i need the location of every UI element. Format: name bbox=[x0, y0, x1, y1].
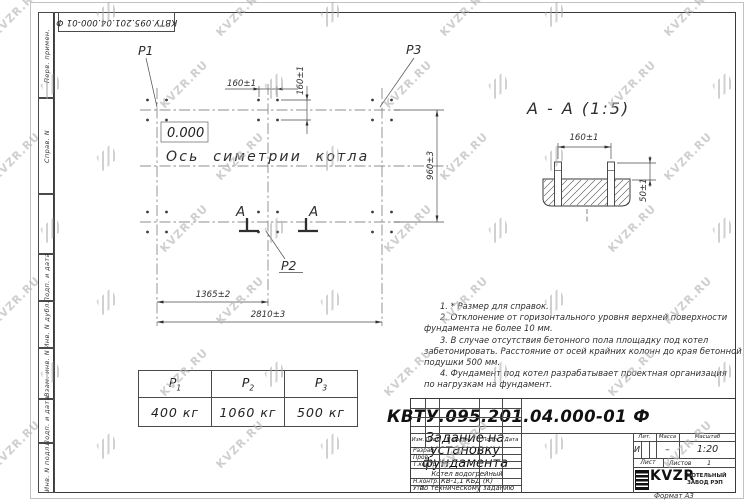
row-razrab: Разраб. bbox=[413, 448, 436, 454]
anchor-bolt-dot bbox=[146, 231, 149, 234]
anchor-bolt-dot bbox=[371, 99, 374, 102]
row-tkontr: Т.контр. bbox=[413, 462, 438, 468]
note-line: фундамента не более 10 мм. bbox=[424, 323, 736, 334]
row-prov: Пров. bbox=[413, 455, 430, 461]
row-nkontr: Н.контр. bbox=[413, 479, 439, 485]
note-line: 1. * Размер для справок. bbox=[424, 301, 736, 312]
anchor-bolt-dot bbox=[276, 99, 279, 102]
col-podp: Подп. bbox=[479, 433, 502, 447]
anchor-bolt-dot bbox=[165, 119, 168, 122]
load-label-p1: P1 bbox=[138, 43, 154, 58]
note-line: по нагрузкам на фундамент. bbox=[424, 379, 736, 390]
logo-caption-line: ЗАВОД РЭП bbox=[687, 480, 723, 486]
listov-value: 1 bbox=[707, 459, 711, 467]
note-line: подушки 500 мм. bbox=[424, 357, 736, 368]
anchor-bolt-dot bbox=[390, 99, 393, 102]
anchor-bolt-right bbox=[608, 162, 615, 206]
dim-160-horizontal: 160±1 bbox=[225, 79, 298, 97]
section-cut-marks: A A bbox=[235, 204, 318, 231]
anchor-bolt-dot bbox=[371, 231, 374, 234]
title-block-doc-number: КВТУ.095.201.04.000-01 Ф bbox=[411, 399, 626, 433]
kvzr-logo-icon bbox=[635, 470, 649, 490]
section-view: A - A (1:5) 160±1 50±1 bbox=[526, 99, 656, 224]
drawing-sheet: Перв. примен. Справ. N Подп. и дата Инв.… bbox=[0, 0, 750, 500]
logo-caption-line: КОТЕЛЬНЫЙ bbox=[687, 473, 727, 479]
load-table-header: P1 bbox=[139, 371, 212, 398]
col-list: Лист bbox=[425, 433, 439, 447]
anchor-bolt-dot bbox=[257, 119, 260, 122]
elevation-value: 0.000 bbox=[167, 126, 204, 141]
dim-2810: 2810±3 bbox=[157, 310, 382, 324]
col-n-dokum: N докум. bbox=[439, 433, 479, 447]
title-block: Изм. Лист N докум. Подп. Дата Разраб. Пр… bbox=[410, 398, 736, 493]
technical-notes: 1. * Размер для справок. 2. Отклонение о… bbox=[424, 301, 736, 391]
elevation-mark: 0.000 bbox=[161, 122, 208, 142]
symmetry-axis-label: Ось симетрии котла bbox=[166, 149, 369, 165]
section-letter-right: A bbox=[308, 204, 318, 220]
note-line: 2. Отклонение от горизонтального уровня … bbox=[424, 312, 736, 323]
row-utv: Утв. bbox=[413, 486, 425, 492]
massa-label: Масса bbox=[656, 433, 679, 441]
dim-160-vertical: 160±1 bbox=[281, 66, 311, 134]
dim-text: 960±3 bbox=[426, 151, 436, 180]
anchor-bolt-dot bbox=[276, 119, 279, 122]
col-data: Дата bbox=[502, 433, 521, 447]
load-table-value: 500 кг bbox=[285, 398, 358, 427]
masshtab-value: 1:20 bbox=[679, 441, 736, 458]
load-table-header: P2 bbox=[212, 371, 285, 398]
anchor-bolt-dot bbox=[276, 231, 279, 234]
dim-text: 2810±3 bbox=[251, 310, 286, 320]
lit-label: Лит. bbox=[633, 433, 656, 441]
product-line: по техническому заданию bbox=[411, 485, 523, 492]
load-table-value: 1060 кг bbox=[212, 398, 285, 427]
section-letter-left: A bbox=[235, 204, 245, 220]
anchor-bolt-left bbox=[555, 162, 562, 206]
anchor-bolt-dot bbox=[165, 211, 168, 214]
load-table-value: 400 кг bbox=[139, 398, 212, 427]
dim-1365: 1365±2 bbox=[157, 290, 268, 304]
anchor-bolt-dot bbox=[257, 99, 260, 102]
load-table-header-row: P1 P2 P3 bbox=[139, 371, 358, 398]
load-table-value-row: 400 кг 1060 кг 500 кг bbox=[139, 398, 358, 427]
section-view-title: A - A (1:5) bbox=[526, 99, 630, 118]
load-table-header: P3 bbox=[285, 371, 358, 398]
anchor-bolt-dot bbox=[371, 119, 374, 122]
anchor-bolt-dot bbox=[146, 211, 149, 214]
anchor-bolt-dot bbox=[165, 99, 168, 102]
massa-value: – bbox=[656, 441, 679, 458]
list-label: Лист bbox=[635, 458, 661, 467]
anchor-bolt-dot bbox=[390, 231, 393, 234]
masshtab-label: Масштаб bbox=[679, 433, 736, 441]
anchor-bolt-dot bbox=[276, 211, 279, 214]
lit-value: И bbox=[633, 441, 641, 458]
load-label-p2: P2 bbox=[281, 258, 297, 273]
anchor-bolt-dot bbox=[371, 211, 374, 214]
anchor-bolt-dot bbox=[257, 211, 260, 214]
listov-label: Листов bbox=[669, 460, 691, 467]
load-table: P1 P2 P3 400 кг 1060 кг 500 кг bbox=[138, 370, 358, 427]
dim-text: 160±1 bbox=[296, 66, 306, 95]
anchor-bolt-dot bbox=[146, 99, 149, 102]
format-label: Формат А3 bbox=[654, 492, 694, 500]
anchor-bolt-dot bbox=[146, 119, 149, 122]
note-line: забетонировать. Расстояние от осей крайн… bbox=[424, 346, 736, 357]
note-line: 3. В случае отсутствия бетонного пола пл… bbox=[424, 335, 736, 346]
dim-text: 50±1 bbox=[639, 178, 649, 202]
col-izm: Изм. bbox=[411, 433, 425, 447]
anchor-bolt-dot bbox=[390, 211, 393, 214]
note-line: 4. Фундамент под котел разрабатывает про… bbox=[424, 368, 736, 379]
dim-text: 1365±2 bbox=[196, 290, 231, 300]
dim-text: 160±1 bbox=[227, 79, 256, 89]
anchor-bolt-dot bbox=[390, 119, 393, 122]
load-label-p3: P3 bbox=[406, 42, 422, 57]
dim-text: 160±1 bbox=[569, 133, 598, 143]
anchor-bolt-dot bbox=[165, 231, 168, 234]
